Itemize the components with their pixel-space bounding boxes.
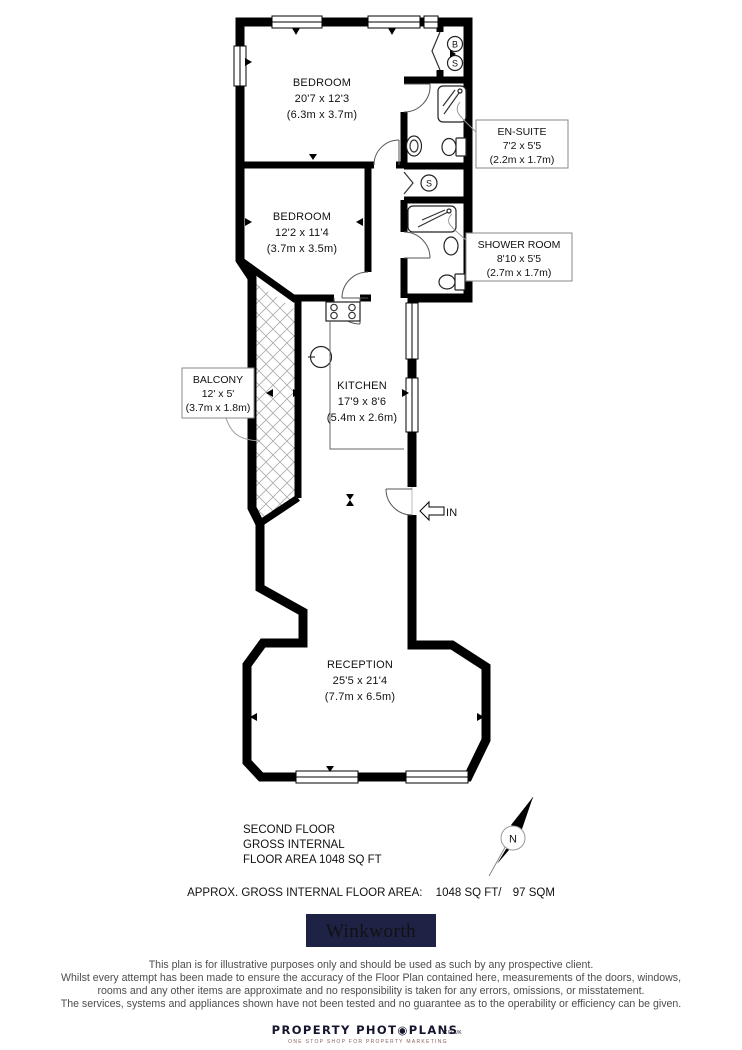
compass: N [489, 797, 533, 876]
svg-text:20'7 x 12'3: 20'7 x 12'3 [295, 93, 350, 105]
reception-label: RECEPTION 25'5 x 21'4 (7.7m x 6.5m) [325, 659, 395, 703]
balcony-imperial: 12' x 5' [202, 388, 235, 400]
bedroom1-door [374, 140, 399, 165]
balcony-metric: (3.7m x 1.8m) [186, 402, 251, 414]
ensuite-imperial: 7'2 x 5'5 [503, 140, 542, 152]
svg-text:BEDROOM: BEDROOM [273, 211, 331, 223]
window-left-bedroom1 [234, 46, 246, 86]
footer-logo: PROPERTY PHOT◉PLANS .CO.UK ONE STOP SHOP… [272, 1023, 463, 1045]
window-reception-1 [296, 771, 358, 783]
disclaimer-line-2: Whilst every attempt has been made to en… [61, 972, 681, 984]
balcony-name: BALCONY [193, 374, 243, 386]
floor-summary-line3: FLOOR AREA 1048 SQ FT [243, 854, 382, 866]
window-top-3 [424, 16, 438, 28]
footer-tagline: ONE STOP SHOP FOR PROPERTY MARKETING [288, 1039, 448, 1045]
brand-logo-text: Winkworth [326, 921, 416, 942]
svg-text:17'9 x 8'6: 17'9 x 8'6 [338, 396, 386, 408]
bedroom1-label: BEDROOM 20'7 x 12'3 (6.3m x 3.7m) [287, 77, 357, 121]
entrance-marker: IN [420, 502, 457, 520]
kitchen-hob [326, 302, 360, 321]
footer-logo-suffix: .CO.UK [442, 1030, 462, 1036]
shower-room-metric: (2.7m x 1.7m) [487, 267, 552, 279]
footer-logo-text: PROPERTY PHOT◉PLANS [272, 1023, 459, 1037]
window-kitchen-1 [406, 303, 418, 359]
kitchen-sink [308, 347, 332, 368]
window-top-1 [272, 16, 322, 28]
entrance-opening [406, 487, 418, 515]
disclaimer-line-4: The services, systems and appliances sho… [61, 998, 682, 1010]
shower-room-door [404, 232, 430, 258]
floorplan-page: B S S IN BEDROOM 20'7 x 12'3 (6.3m x 3.7… [0, 0, 742, 1050]
bedroom2-door [342, 272, 368, 298]
kitchen-label: KITCHEN 17'9 x 8'6 (5.4m x 2.6m) [327, 380, 397, 424]
ensuite-shower [438, 86, 466, 122]
storage-bifold-door [404, 172, 413, 194]
svg-text:(6.3m x 3.7m): (6.3m x 3.7m) [287, 109, 357, 121]
shower-room-imperial: 8'10 x 5'5 [497, 253, 541, 265]
shower-room-sink [444, 237, 458, 255]
svg-text:BEDROOM: BEDROOM [293, 77, 351, 89]
svg-text:(3.7m x 3.5m): (3.7m x 3.5m) [267, 243, 337, 255]
compass-north-label: N [509, 834, 517, 846]
ensuite-toilet [442, 138, 466, 156]
brand-logo: Winkworth [306, 914, 436, 947]
doors [334, 32, 440, 515]
floor-summary: SECOND FLOOR GROSS INTERNAL FLOOR AREA 1… [243, 824, 382, 866]
ensuite-metric: (2.2m x 1.7m) [490, 154, 555, 166]
area-summary-line: APPROX. GROSS INTERNAL FLOOR AREA: 1048 … [187, 887, 555, 899]
window-top-2 [368, 16, 420, 28]
floor-summary-line1: SECOND FLOOR [243, 824, 335, 836]
ensuite-door [404, 84, 430, 112]
svg-text:KITCHEN: KITCHEN [337, 380, 387, 392]
window-reception-2 [406, 771, 468, 783]
entrance-arrow-icon [420, 502, 444, 520]
closet-storage-letter: S [452, 59, 458, 69]
shower-room-toilet [439, 274, 465, 290]
boiler-letter: B [452, 40, 458, 50]
svg-text:25'5 x 21'4: 25'5 x 21'4 [333, 675, 388, 687]
disclaimer-line-1: This plan is for illustrative purposes o… [149, 959, 594, 971]
closet-bifold-door [432, 32, 440, 70]
storage-letter: S [426, 179, 432, 189]
ensuite-sink [407, 136, 422, 156]
svg-text:(7.7m x 6.5m): (7.7m x 6.5m) [325, 691, 395, 703]
svg-text:(5.4m x 2.6m): (5.4m x 2.6m) [327, 412, 397, 424]
shower-room-name: SHOWER ROOM [478, 239, 561, 251]
disclaimer: This plan is for illustrative purposes o… [61, 959, 682, 1010]
fixtures [308, 86, 466, 449]
bedroom2-label: BEDROOM 12'2 x 11'4 (3.7m x 3.5m) [267, 211, 337, 255]
area-value-sqm: 97 SQM [513, 887, 555, 899]
svg-text:RECEPTION: RECEPTION [327, 659, 393, 671]
area-value-ft: 1048 SQ FT/ [436, 887, 503, 899]
window-kitchen-2 [406, 378, 418, 432]
floor-summary-line2: GROSS INTERNAL [243, 839, 345, 851]
entrance-label: IN [446, 507, 457, 519]
floor-plan-canvas: B S S IN BEDROOM 20'7 x 12'3 (6.3m x 3.7… [0, 0, 742, 1050]
svg-text:12'2 x 11'4: 12'2 x 11'4 [275, 227, 329, 239]
balcony-hatch [254, 282, 296, 519]
ensuite-name: EN-SUITE [497, 126, 546, 138]
disclaimer-line-3: rooms and any other items are approximat… [98, 985, 645, 997]
area-label: APPROX. GROSS INTERNAL FLOOR AREA: [187, 887, 422, 899]
